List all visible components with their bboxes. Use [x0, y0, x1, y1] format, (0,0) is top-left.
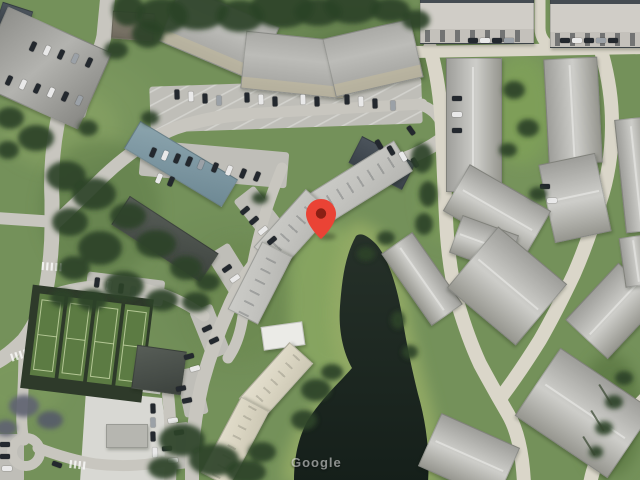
tree	[615, 371, 633, 385]
tree	[377, 231, 395, 245]
tree	[391, 311, 405, 329]
tree	[0, 141, 19, 159]
tree	[146, 289, 178, 311]
tree	[595, 421, 613, 435]
tree	[0, 107, 24, 129]
tree	[411, 143, 433, 173]
tree	[503, 81, 525, 99]
tree	[252, 192, 268, 204]
tree	[110, 203, 146, 229]
google-logo[interactable]: Google	[291, 455, 342, 470]
tree	[37, 411, 63, 429]
pole-shadows	[582, 384, 612, 456]
tree	[529, 187, 547, 201]
tree	[291, 410, 317, 430]
tree	[419, 181, 437, 207]
tree	[301, 379, 331, 401]
tree	[402, 10, 430, 30]
tree	[415, 213, 433, 235]
tree	[78, 120, 98, 136]
pin-dot-icon	[316, 208, 326, 218]
tree	[170, 256, 202, 280]
tree	[0, 420, 17, 436]
tree	[104, 41, 128, 59]
pin-body-icon	[306, 199, 336, 239]
tree	[402, 345, 418, 359]
map-canvas[interactable]: Google	[0, 0, 640, 480]
tree	[517, 119, 539, 137]
tree	[18, 125, 54, 151]
tree	[148, 457, 180, 479]
tree	[182, 292, 210, 312]
tree	[52, 208, 88, 236]
tree	[50, 289, 74, 307]
tree	[132, 20, 164, 48]
tree	[9, 395, 39, 417]
tree-canopy-layer	[0, 0, 640, 480]
tree	[136, 230, 176, 258]
tree	[72, 178, 116, 210]
tree	[104, 271, 144, 301]
trees	[0, 0, 633, 480]
tree	[141, 111, 159, 125]
tree	[499, 143, 517, 157]
tree	[77, 289, 107, 311]
location-marker[interactable]	[306, 199, 336, 239]
tree	[248, 442, 276, 462]
tree	[357, 247, 375, 261]
tree	[321, 364, 343, 380]
tree	[196, 273, 220, 291]
tree	[58, 256, 90, 280]
pole-shadow	[582, 436, 595, 456]
